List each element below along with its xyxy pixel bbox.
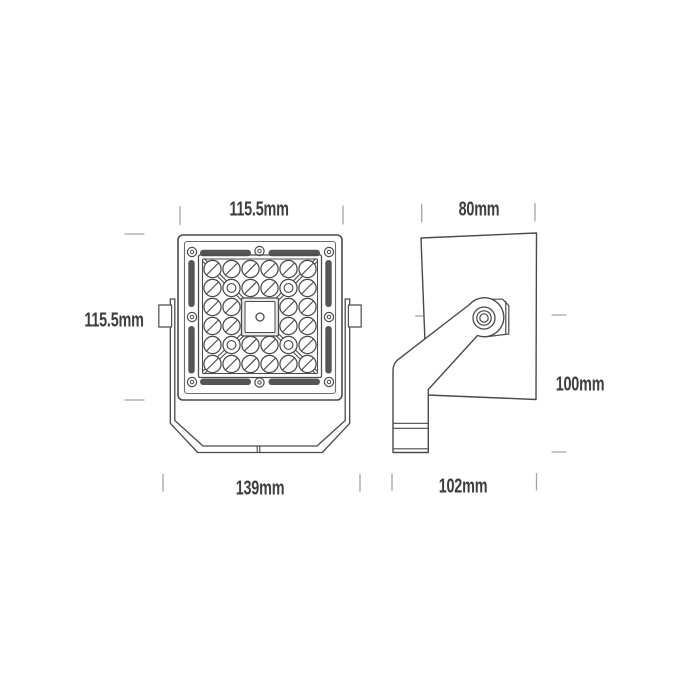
lens bbox=[242, 355, 259, 372]
pivot-knob-right bbox=[348, 305, 361, 327]
pivot-knob-left bbox=[159, 305, 172, 327]
screw bbox=[187, 247, 196, 256]
lens bbox=[223, 298, 240, 315]
lens-double-ring bbox=[280, 336, 297, 353]
lens bbox=[299, 279, 316, 296]
lens bbox=[299, 260, 316, 277]
lens bbox=[204, 336, 221, 353]
lens bbox=[299, 336, 316, 353]
screw bbox=[187, 312, 196, 321]
screw bbox=[324, 377, 333, 386]
lens bbox=[204, 317, 221, 334]
drawing-svg bbox=[0, 0, 700, 700]
dim-side-bottom-depth: 102mm bbox=[439, 476, 488, 499]
lens-double-ring bbox=[223, 279, 240, 296]
dim-front-left-height: 115.5mm bbox=[84, 310, 143, 333]
floodlight-technical-drawing: 115.5mm 115.5mm 139mm 80mm 100mm 102mm bbox=[0, 0, 700, 700]
lens bbox=[280, 355, 297, 372]
center-plate bbox=[242, 298, 279, 336]
lens bbox=[242, 260, 259, 277]
lens-double-ring bbox=[223, 336, 240, 353]
lens bbox=[242, 279, 259, 296]
lens-double-ring bbox=[280, 279, 297, 296]
screw bbox=[187, 377, 196, 386]
lens bbox=[280, 298, 297, 315]
lens bbox=[223, 260, 240, 277]
lens bbox=[261, 336, 278, 353]
lens bbox=[280, 317, 297, 334]
screw bbox=[255, 378, 264, 387]
dim-side-top-depth: 80mm bbox=[459, 199, 500, 222]
front-view bbox=[159, 235, 361, 453]
lens bbox=[261, 279, 278, 296]
lens bbox=[204, 355, 221, 372]
lens bbox=[223, 355, 240, 372]
lens bbox=[299, 355, 316, 372]
lens bbox=[223, 317, 240, 334]
dim-side-right-height: 100mm bbox=[556, 374, 605, 397]
pivot-bolt bbox=[473, 307, 495, 329]
screw bbox=[324, 247, 333, 256]
lens bbox=[242, 336, 259, 353]
yoke-center-notch bbox=[257, 446, 260, 453]
screw bbox=[255, 246, 264, 255]
lens bbox=[204, 298, 221, 315]
lens bbox=[280, 260, 297, 277]
lens bbox=[299, 317, 316, 334]
dim-front-top-width: 115.5mm bbox=[229, 199, 288, 222]
lens bbox=[261, 260, 278, 277]
lens bbox=[204, 279, 221, 296]
center-plate-hole bbox=[256, 313, 264, 321]
lens bbox=[299, 298, 316, 315]
side-view bbox=[393, 233, 537, 453]
dim-front-bottom-width: 139mm bbox=[236, 478, 285, 501]
lens bbox=[204, 260, 221, 277]
screw bbox=[324, 312, 333, 321]
lens bbox=[261, 355, 278, 372]
